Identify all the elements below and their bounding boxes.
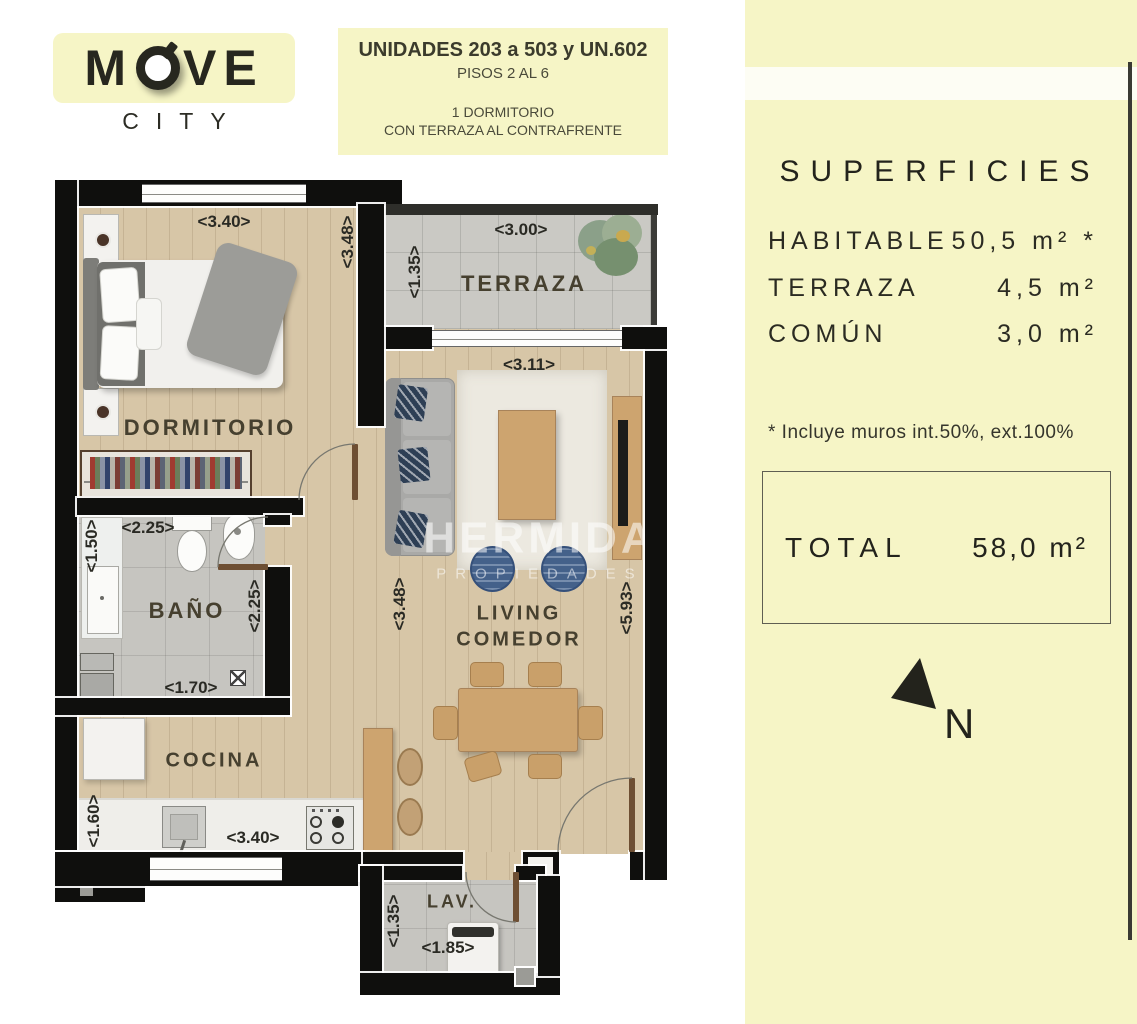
surface-row-comun: COMÚN 3,0 m² (768, 320, 1098, 349)
room-label-comedor: COMEDOR (456, 629, 581, 652)
room-label-living: LIVING (477, 603, 562, 626)
room-label-cocina: COCINA (166, 750, 263, 773)
room-label-dormitorio: DORMITORIO (124, 415, 297, 441)
room-label-terraza: TERRAZA (461, 271, 587, 297)
dim-dorm-height: <3.48> (338, 216, 358, 269)
room-label-lav: LAV. (427, 892, 477, 913)
dim-living-left: <3.48> (390, 578, 410, 631)
total-label: TOTAL (785, 532, 908, 564)
dim-cocina-width: <3.40> (227, 828, 280, 848)
dim-terraza-width: <3.00> (495, 220, 548, 240)
dim-lav-width: <1.85> (422, 938, 475, 958)
dim-living-width: <3.11> (503, 355, 555, 375)
walls-note: * Incluye muros int.50%, ext.100% (768, 422, 1108, 444)
surface-label: COMÚN (768, 320, 887, 349)
dim-terraza-height: <1.35> (405, 246, 425, 299)
north-arrow-icon (888, 655, 950, 717)
total-box: TOTAL 58,0 m² (762, 471, 1111, 624)
dim-dorm-width: <3.40> (198, 212, 251, 232)
dim-lav-height: <1.35> (384, 895, 404, 948)
surface-value: 50,5 m² * (952, 227, 1098, 256)
dim-bano-height: <2.25> (245, 580, 265, 633)
dim-living-right: <5.93> (617, 582, 637, 635)
surface-row-terraza: TERRAZA 4,5 m² (768, 274, 1098, 303)
door-swing-arcs (0, 0, 700, 1024)
surface-label: TERRAZA (768, 274, 920, 303)
sidebar-white-band (745, 67, 1137, 100)
total-value: 58,0 m² (972, 532, 1088, 564)
surface-label: HABITABLE (768, 227, 949, 256)
sidebar-edge-line (1128, 62, 1132, 940)
north-label: N (944, 700, 974, 748)
surfaces-title: SUPERFICIES (765, 155, 1115, 189)
floor-plan-sheet: M VE CITY UNIDADES 203 a 503 y UN.602 PI… (0, 0, 1137, 1024)
dim-bano-width: <2.25> (122, 518, 175, 538)
surface-value: 3,0 m² (997, 320, 1098, 349)
room-label-bano: BAÑO (149, 598, 226, 624)
dim-bano-lower: <1.70> (165, 678, 218, 698)
dim-shower-height: <1.50> (82, 520, 102, 573)
surface-value: 4,5 m² (997, 274, 1098, 303)
dim-cocina-height: <1.60> (84, 795, 104, 848)
surface-row-habitable: HABITABLE 50,5 m² * (768, 227, 1098, 256)
